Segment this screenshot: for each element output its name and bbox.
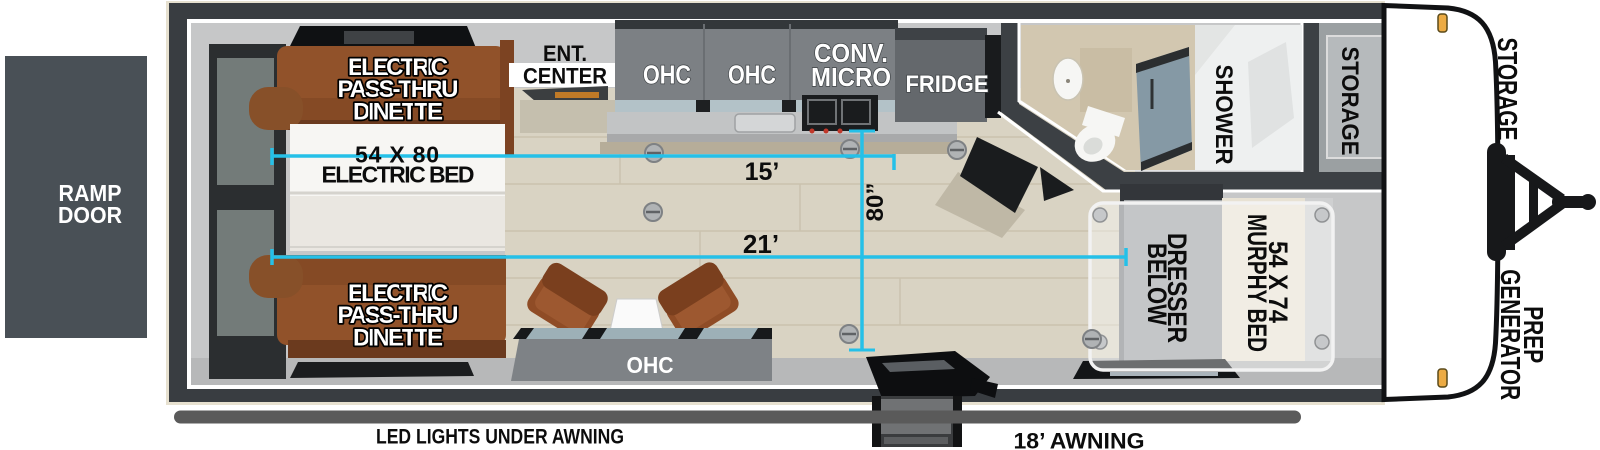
svg-text:FRIDGE: FRIDGE (906, 71, 989, 98)
svg-text:LED LIGHTS UNDER AWNING: LED LIGHTS UNDER AWNING (376, 426, 624, 449)
svg-text:OHC: OHC (728, 60, 776, 90)
svg-text:18’ AWNING: 18’ AWNING (1014, 429, 1145, 450)
svg-text:21’: 21’ (743, 229, 779, 259)
svg-text:ELECTRIC BED: ELECTRIC BED (322, 162, 475, 188)
svg-text:CENTER: CENTER (523, 64, 607, 89)
svg-text:MURPHY BED: MURPHY BED (1242, 214, 1272, 352)
svg-text:SHOWER: SHOWER (1210, 65, 1237, 165)
svg-text:80”: 80” (862, 183, 889, 222)
svg-text:DINETTE: DINETTE (353, 99, 443, 126)
svg-text:PREP: PREP (1518, 306, 1549, 363)
svg-text:OHC: OHC (643, 60, 691, 90)
svg-text:ENT.: ENT. (543, 41, 587, 66)
svg-text:OHC: OHC (627, 352, 674, 378)
svg-text:STORAGE: STORAGE (1336, 47, 1363, 156)
svg-text:DINETTE: DINETTE (353, 325, 443, 352)
svg-text:BELOW: BELOW (1142, 243, 1172, 325)
svg-text:STORAGE: STORAGE (1492, 38, 1523, 141)
svg-text:MICRO: MICRO (811, 62, 891, 92)
svg-text:15’: 15’ (745, 158, 780, 186)
svg-text:DOOR: DOOR (58, 202, 122, 228)
